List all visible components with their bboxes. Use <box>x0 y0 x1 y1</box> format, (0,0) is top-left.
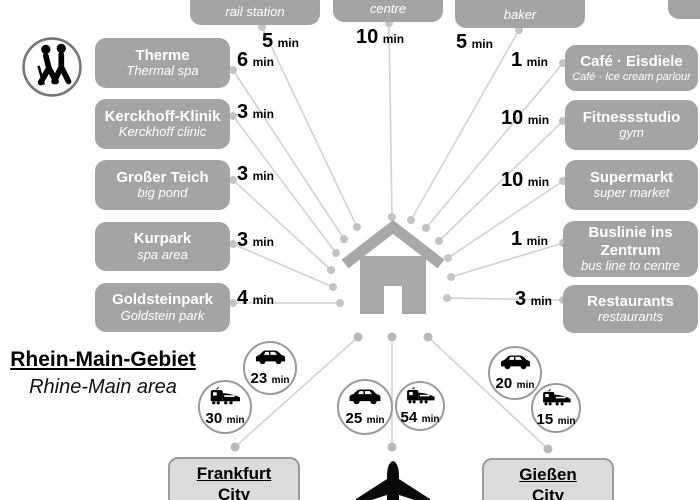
amenity-label-en: Goldstein park <box>121 309 205 324</box>
amenity-box-baker: baker <box>455 0 585 28</box>
amenity-label-en: Café · Ice cream parlour <box>572 71 691 84</box>
amenity-label-en: bus line to centre <box>581 259 680 274</box>
time-label-restaurants: 3 min <box>515 288 552 311</box>
amenity-box-therme: Therme Thermal spa <box>95 38 230 88</box>
amenity-label-de: Goldsteinpark <box>112 291 213 309</box>
time-label-supermarkt: 10 min <box>501 169 549 192</box>
amenity-label-de: Großer Teich <box>116 169 208 187</box>
frankfurt-train-badge: 30 min <box>198 380 252 434</box>
amenity-box-grosser-teich: Großer Teich big pond <box>95 160 230 210</box>
amenity-box-kurpark: Kurpark spa area <box>95 222 230 271</box>
airplane-icon <box>356 461 430 500</box>
amenity-label-en: Thermal spa <box>126 64 198 79</box>
amenity-box-fitnessstudio: Fitnessstudio gym <box>565 100 698 150</box>
amenity-label-en: centre <box>370 2 406 17</box>
amenity-box-goldsteinpark: Goldsteinpark Goldstein park <box>95 283 230 332</box>
amenity-label-en: gym <box>619 126 644 141</box>
city-sub: City <box>484 485 612 500</box>
amenity-box-cafe-eisdiele: Café · Eisdiele Café · Ice cream parlour <box>565 45 698 91</box>
amenity-label-de: Kerckhoff-Klinik <box>105 108 221 126</box>
car-icon <box>499 354 532 375</box>
amenity-box-centre: centre <box>333 0 443 22</box>
amenity-label-de: Buslinie ins Zentrum <box>567 224 694 259</box>
time-label-goldsteinpark: 4 min <box>237 287 274 310</box>
cut-box-fragment <box>668 0 700 19</box>
time-label-cafe: 1 min <box>511 49 548 72</box>
car-icon <box>348 388 382 410</box>
time-label-kurpark: 3 min <box>237 229 274 252</box>
car-icon <box>254 349 287 370</box>
amenity-box-rail-station: rail station <box>190 0 320 25</box>
amenity-label-en: big pond <box>138 186 188 201</box>
amenity-label-de: Kurpark <box>134 230 192 248</box>
amenity-box-supermarkt: Supermarkt super market <box>565 160 698 210</box>
time-label-kerckhoff: 3 min <box>237 101 274 124</box>
house-icon <box>345 227 441 314</box>
time-label-centre: 10 min <box>356 26 404 49</box>
train-icon <box>208 387 242 410</box>
amenity-label-de: Café · Eisdiele <box>580 53 683 71</box>
amenity-label-en: baker <box>504 8 537 23</box>
train-icon <box>405 387 436 409</box>
giessen-car-badge: 20 min <box>488 346 542 400</box>
region-name-en: Rhine-Main area <box>5 376 201 399</box>
frankfurt-city-box: Frankfurt City <box>168 457 300 500</box>
amenity-label-de: Supermarkt <box>590 169 673 187</box>
city-name: Gießen <box>484 464 612 485</box>
city-name: Frankfurt <box>170 463 298 484</box>
airport-train-badge: 54 min <box>395 381 445 431</box>
giessen-city-box: Gießen City <box>482 458 614 500</box>
time-label-baker: 5 min <box>456 31 493 54</box>
frankfurt-car-badge: 23 min <box>243 341 297 395</box>
amenity-label-en: restaurants <box>598 310 663 325</box>
amenity-label-de: Restaurants <box>587 293 674 311</box>
airport-car-badge: 25 min <box>337 379 393 435</box>
city-sub: City <box>170 484 298 500</box>
amenity-label-de: Therme <box>135 47 189 65</box>
pedestrians-icon <box>21 36 83 103</box>
train-icon <box>541 389 572 411</box>
amenity-label-en: Kerckhoff clinic <box>119 125 206 140</box>
amenity-box-kerckhoff-klinik: Kerckhoff-Klinik Kerckhoff clinic <box>95 99 230 149</box>
amenity-label-en: spa area <box>137 248 188 263</box>
region-label: Rhein-Main-Gebiet Rhine-Main area <box>5 348 201 399</box>
amenity-label-en: rail station <box>225 5 284 20</box>
time-label-grosser-teich: 3 min <box>237 163 274 186</box>
time-label-fitnessstudio: 10 min <box>501 107 549 130</box>
amenity-box-restaurants: Restaurants restaurants <box>563 285 698 333</box>
amenity-label-de: Fitnessstudio <box>583 109 681 127</box>
walkability-infographic: rail station centre baker Therme Thermal… <box>0 0 700 500</box>
giessen-train-badge: 15 min <box>531 383 581 433</box>
amenity-box-buslinie: Buslinie ins Zentrum bus line to centre <box>563 221 698 277</box>
time-label-therme: 6 min <box>237 49 274 72</box>
time-label-buslinie: 1 min <box>511 228 548 251</box>
region-name-de: Rhein-Main-Gebiet <box>5 348 201 372</box>
amenity-label-en: super market <box>594 186 670 201</box>
